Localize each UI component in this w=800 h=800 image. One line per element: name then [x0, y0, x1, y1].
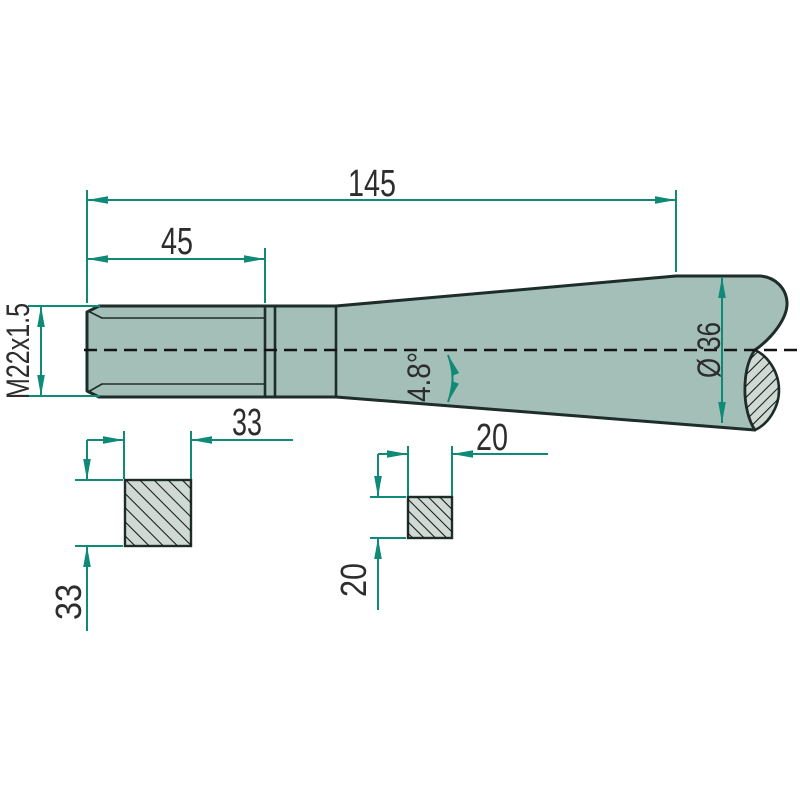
- diameter-label: Ø 36: [691, 322, 727, 378]
- dimension-thread-length: 45: [87, 221, 265, 303]
- part-outline: [87, 276, 787, 430]
- technical-drawing-page: 145 45 M22x1.5 4.8° Ø 36 33 33: [0, 0, 800, 800]
- taper-angle-label: 4.8°: [401, 352, 437, 402]
- cross-section-large: 33 33: [48, 402, 293, 631]
- thread-spec-label: M22x1.5: [0, 303, 36, 399]
- break-section-hatch-lines: [745, 350, 779, 430]
- large-square-hatch: [125, 480, 191, 546]
- square-small-width-label: 20: [476, 417, 508, 459]
- small-square-hatch: [408, 497, 452, 538]
- square-small-height-label: 20: [333, 563, 374, 597]
- dim-145-label: 145: [348, 163, 396, 205]
- dim-45-label: 45: [161, 221, 193, 263]
- square-large-width-label: 33: [232, 402, 262, 444]
- cross-section-small: 20 20: [333, 417, 548, 610]
- square-large-height-label: 33: [48, 584, 89, 620]
- technical-drawing-canvas: 145 45 M22x1.5 4.8° Ø 36 33 33: [0, 0, 800, 800]
